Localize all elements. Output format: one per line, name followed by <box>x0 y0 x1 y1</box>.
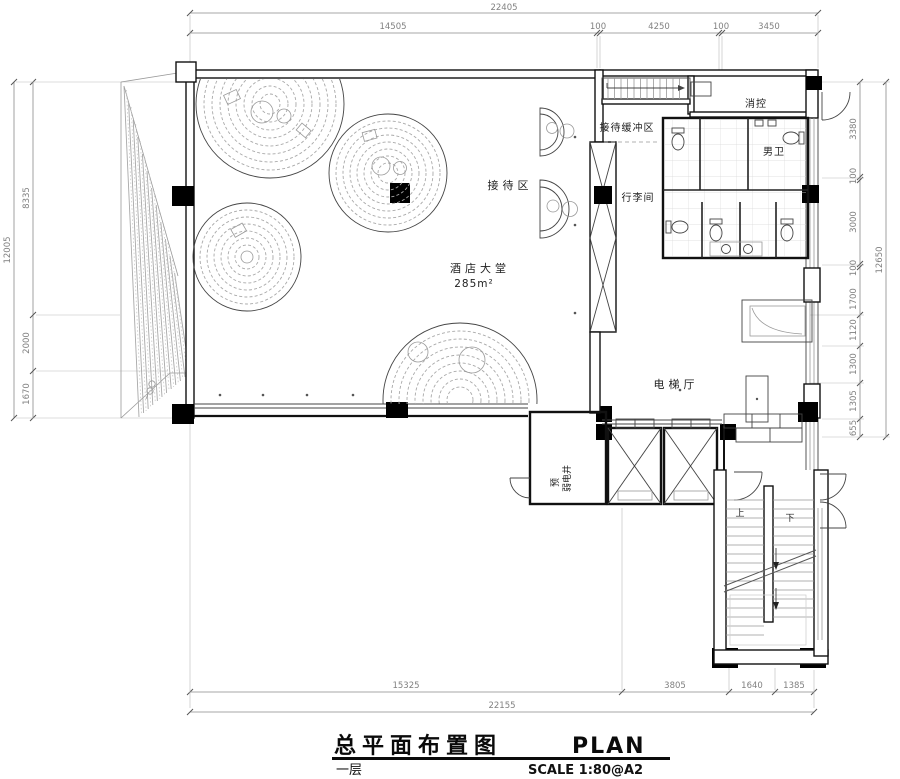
dim-right-seg-3: 100 <box>849 260 859 276</box>
dimensions-left: 12005 8335 2000 1670 <box>3 79 184 421</box>
dim-top-seg-1: 100 <box>590 22 606 32</box>
label-mens-toilet: 男卫 <box>763 146 785 158</box>
label-elevator-hall: 电梯厅 <box>654 378 699 391</box>
dim-left-seg-1: 2000 <box>22 332 32 354</box>
dim-left-seg-0: 8335 <box>22 187 32 209</box>
dim-top-seg-4: 3450 <box>758 22 780 32</box>
dim-right-seg-0: 3380 <box>849 118 859 140</box>
label-shaft: 弱电井 <box>561 465 573 492</box>
left-facade-steps <box>121 72 192 418</box>
dim-top-seg-3: 100 <box>713 22 729 32</box>
label-lobby-area: 285m² <box>454 278 493 290</box>
datum-symbol <box>146 381 155 399</box>
top-escape-stair <box>602 78 690 99</box>
dimensions-right: 3380 100 3000 100 1700 1120 1300 1305 65… <box>810 79 890 440</box>
dim-bottom-total: 22155 <box>488 701 515 711</box>
label-fire-control: 消控 <box>745 97 767 110</box>
label-stair-down: 下 <box>785 514 794 524</box>
label-stair-up: 上 <box>735 508 744 519</box>
stair-direction-arrows <box>773 548 779 610</box>
mosaic-circle-1 <box>196 30 344 178</box>
dim-right-seg-7: 1305 <box>849 390 859 412</box>
label-shaft-prefix: 预 <box>550 478 561 487</box>
floor-label: 一层 <box>336 763 362 778</box>
luggage-shaft <box>590 142 660 413</box>
label-lobby: 酒店大堂 <box>450 261 510 275</box>
scale-label: SCALE 1:80@A2 <box>528 763 643 778</box>
dim-right-seg-1: 100 <box>849 168 859 184</box>
reception-sofas <box>540 108 578 238</box>
dim-top-seg-0: 14505 <box>379 22 406 32</box>
dim-right-seg-6: 1300 <box>849 353 859 375</box>
elevator-shaft-1 <box>608 419 661 504</box>
label-reception-buffer: 接待缓冲区 <box>600 121 655 134</box>
dim-left-seg-2: 1670 <box>22 383 32 405</box>
dim-top-total: 22405 <box>490 3 517 13</box>
stair-block <box>714 470 846 664</box>
dimensions-top: 22405 14505 100 4250 100 3450 <box>187 3 821 72</box>
dim-right-total: 12650 <box>875 246 885 273</box>
dim-right-seg-5: 1120 <box>849 319 859 341</box>
floor-plan-canvas: 22405 14505 100 4250 100 3450 15325 3805… <box>0 0 900 779</box>
drawing-title-en: PLAN <box>572 734 646 759</box>
label-luggage-room: 行李间 <box>622 191 655 204</box>
floor-plan-drawing: 22405 14505 100 4250 100 3450 15325 3805… <box>0 0 900 779</box>
label-reception: 接待区 <box>488 178 533 192</box>
dim-left-total: 12005 <box>3 236 13 263</box>
mosaic-circle-3 <box>193 203 301 311</box>
dim-bottom-seg-2: 1640 <box>741 681 763 691</box>
mosaic-circle-2 <box>329 114 447 232</box>
mosaic-circle-4 <box>383 323 537 477</box>
elevator-shaft-2 <box>664 419 717 504</box>
dim-right-seg-2: 3000 <box>849 211 859 233</box>
dim-right-seg-4: 1700 <box>849 288 859 310</box>
dim-top-seg-2: 4250 <box>648 22 670 32</box>
dim-bottom-seg-3: 1385 <box>783 681 805 691</box>
dim-bottom-seg-0: 15325 <box>392 681 419 691</box>
title-block: 总平面布置图 PLAN 一层 SCALE 1:80@A2 <box>332 733 670 778</box>
dim-bottom-seg-1: 3805 <box>664 681 686 691</box>
toilet-block <box>663 118 808 258</box>
cabinets <box>724 414 802 442</box>
elevator-block <box>510 300 812 504</box>
dim-right-seg-8: 655 <box>849 420 859 436</box>
drawing-title-cn: 总平面布置图 <box>334 733 502 759</box>
